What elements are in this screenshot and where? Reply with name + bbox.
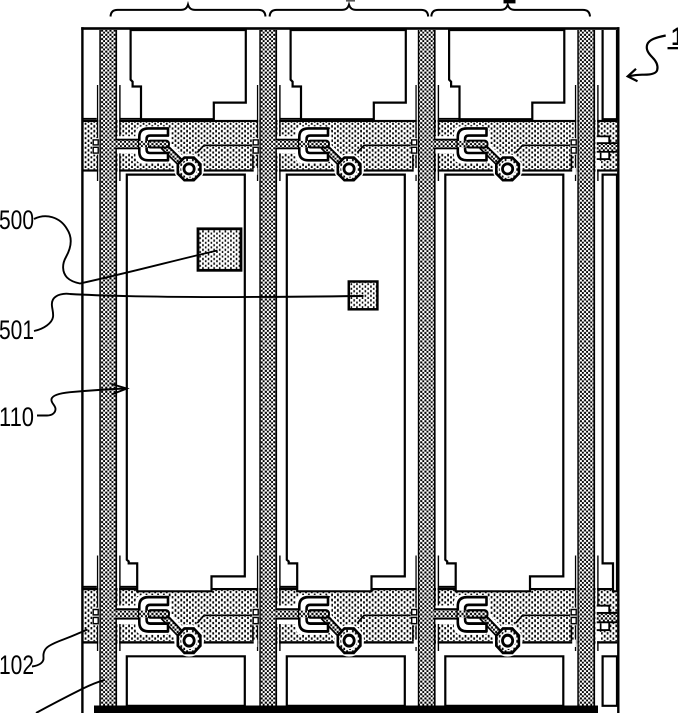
svg-text:501: 501 xyxy=(0,315,34,345)
svg-text:102: 102 xyxy=(0,650,34,680)
svg-text:1: 1 xyxy=(671,23,678,51)
svg-text:110: 110 xyxy=(0,402,34,432)
svg-text:500: 500 xyxy=(0,205,34,235)
